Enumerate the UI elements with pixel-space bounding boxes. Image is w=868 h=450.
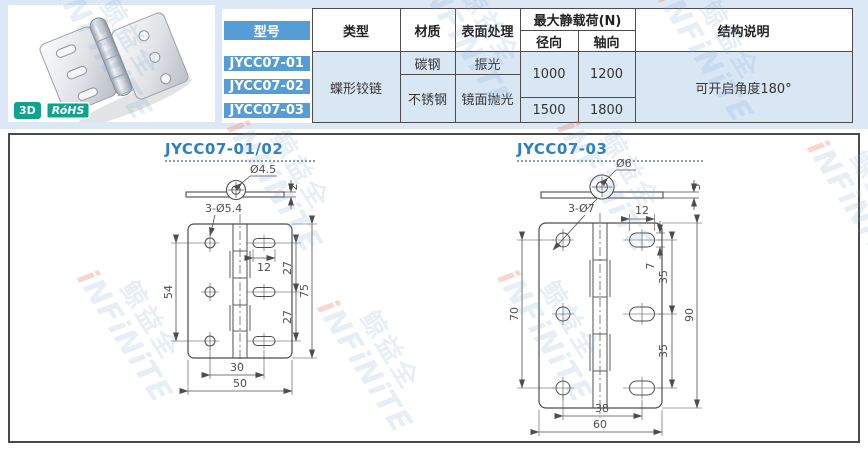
structure-value: 可开启角度180° — [635, 52, 852, 123]
header-radial: 径向 — [520, 31, 578, 52]
header-axial: 轴向 — [578, 31, 635, 52]
radial-load: 1500 — [520, 98, 578, 123]
drawing-title-left: JYCC07-01/02 — [165, 140, 283, 158]
title-underline-left — [165, 160, 315, 162]
header-type: 类型 — [312, 9, 400, 52]
header-material: 材质 — [400, 9, 455, 52]
material-value: 碳钢 — [400, 52, 455, 75]
surface-value: 镜面抛光 — [455, 75, 520, 123]
badge-3d[interactable]: 3D — [14, 102, 41, 119]
header-structure: 结构说明 — [635, 9, 852, 52]
spec-table: 型号 类型 材质 表面处理 最大静载荷(N) 结构说明 径向 轴向 JYCC07… — [222, 8, 853, 123]
drawings-panel — [8, 133, 860, 443]
title-underline-right — [517, 160, 703, 162]
product-photo-box: 3D RóHS — [8, 5, 215, 122]
catalog-page: 鲸益全iNFiNiTE 鲸益全iNFiNiTE 鲸益全iNFiNiTE 鲸益全i… — [0, 0, 868, 450]
header-max-load: 最大静载荷(N) — [520, 9, 635, 31]
header-surface: 表面处理 — [455, 9, 520, 52]
model-cell: JYCC07-03 — [222, 98, 312, 123]
badge-rohs: RóHS — [46, 102, 91, 119]
material-value: 不锈钢 — [400, 75, 455, 123]
model-cell: JYCC07-02 — [222, 75, 312, 98]
surface-value: 振光 — [455, 52, 520, 75]
axial-load: 1800 — [578, 98, 635, 123]
model-cell: JYCC07-01 — [222, 52, 312, 75]
header-model: 型号 — [222, 9, 312, 52]
radial-load: 1000 — [520, 52, 578, 98]
drawing-title-right: JYCC07-03 — [517, 140, 607, 158]
axial-load: 1200 — [578, 52, 635, 98]
type-value: 蝶形铰链 — [312, 52, 400, 123]
